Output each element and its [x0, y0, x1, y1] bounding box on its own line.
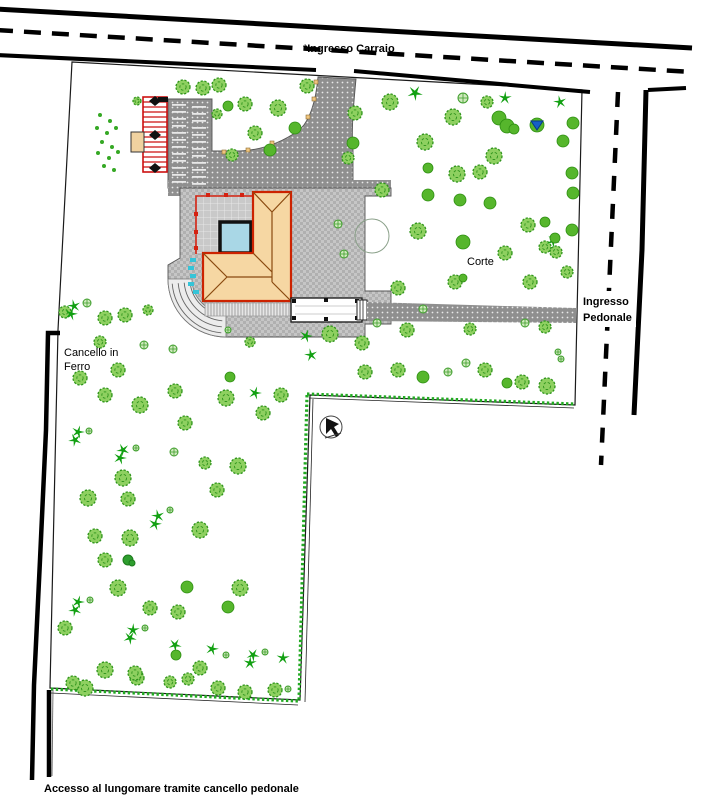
pergola	[143, 96, 168, 173]
north-arrow-icon	[320, 416, 342, 438]
cabin	[131, 132, 144, 152]
label-ingresso-pedonale-1: Ingresso	[583, 296, 629, 308]
site-plan: *Ingresso Carraio Ingresso Pedonale Canc…	[0, 0, 725, 803]
label-corte: Corte	[467, 256, 494, 268]
label-accesso: Accesso al lungomare tramite cancello pe…	[44, 783, 299, 795]
walkway-portico	[291, 298, 367, 322]
seafront-access-lines	[49, 690, 53, 777]
site-plan-svg: *Ingresso Carraio Ingresso Pedonale Canc…	[0, 0, 725, 803]
label-cancello-2: Ferro	[64, 361, 90, 373]
label-ingresso-carraio: *Ingresso Carraio	[303, 43, 395, 55]
label-cancello-1: Cancello in	[64, 347, 118, 359]
road-right	[601, 90, 646, 465]
label-ingresso-pedonale-2: Pedonale	[583, 312, 632, 324]
pool	[220, 222, 251, 253]
